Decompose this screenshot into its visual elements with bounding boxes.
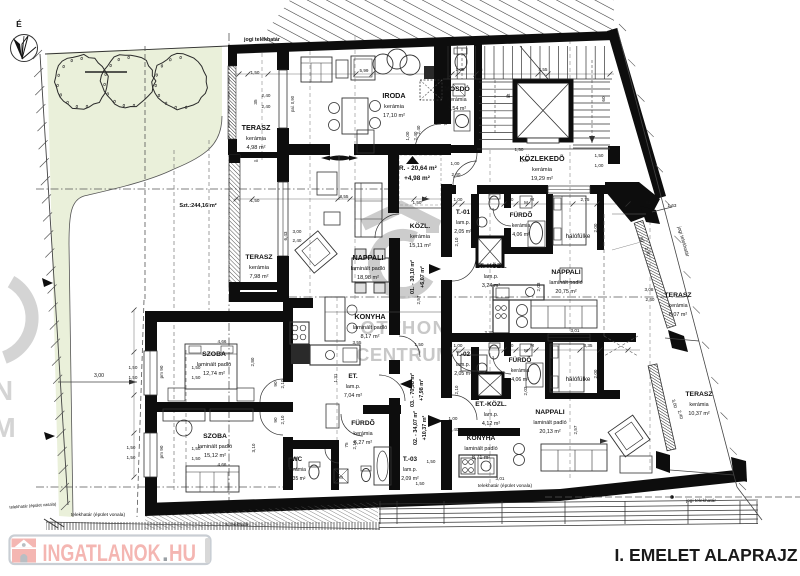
svg-text:TERASZ: TERASZ — [685, 391, 712, 398]
svg-text:ET.: ET. — [348, 373, 357, 380]
svg-text:pm 90: pm 90 — [159, 365, 164, 378]
svg-text:HU: HU — [169, 540, 196, 567]
svg-text:90: 90 — [273, 381, 278, 387]
svg-text:T.-01: T.-01 — [456, 209, 471, 216]
svg-text:1,50: 1,50 — [129, 365, 138, 370]
svg-text:1,50: 1,50 — [595, 153, 604, 158]
svg-text:laminált padló: laminált padló — [197, 362, 232, 368]
svg-text:lam.p.: lam.p. — [484, 274, 499, 280]
svg-text:2,40: 2,40 — [293, 238, 302, 243]
svg-text:3,24 m²: 3,24 m² — [482, 283, 500, 289]
svg-text:4,66: 4,66 — [218, 339, 227, 344]
svg-text:ET.-KÖZL.: ET.-KÖZL. — [475, 261, 507, 270]
svg-text:2,80: 2,80 — [250, 357, 255, 366]
svg-text:2,40: 2,40 — [416, 125, 421, 134]
svg-text:60: 60 — [601, 96, 606, 102]
svg-text:4,12 m²: 4,12 m² — [482, 421, 500, 427]
svg-text:90: 90 — [273, 417, 278, 423]
svg-text:2,00: 2,00 — [593, 223, 598, 232]
svg-text:2,05 m²: 2,05 m² — [454, 229, 472, 235]
svg-text:laminált padló: laminált padló — [353, 325, 388, 331]
svg-text:telekhatár (épület vonala): telekhatár (épület vonala) — [71, 512, 126, 518]
svg-text:NAPPALI: NAPPALI — [551, 269, 580, 276]
svg-text:kerámia: kerámia — [511, 368, 530, 374]
svg-text:É: É — [16, 19, 22, 29]
svg-text:15,11 m²: 15,11 m² — [409, 243, 431, 249]
svg-text:kerámia: kerámia — [249, 265, 270, 271]
svg-text:NAPPALI: NAPPALI — [352, 253, 383, 262]
svg-text:1,00: 1,00 — [595, 163, 604, 168]
svg-text:2,10: 2,10 — [352, 440, 357, 449]
svg-text:KÖZL.: KÖZL. — [410, 221, 430, 230]
svg-text:2,40: 2,40 — [450, 427, 459, 432]
svg-text:6. telekhatár: 6. telekhatár — [225, 522, 249, 527]
svg-text:1,63: 1,63 — [673, 341, 682, 346]
svg-text:1,50: 1,50 — [192, 456, 201, 461]
svg-text:ET.-KÖZL.: ET.-KÖZL. — [475, 399, 507, 408]
svg-text:3,00: 3,00 — [94, 373, 104, 379]
svg-text:lam.p.: lam.p. — [456, 220, 470, 226]
svg-text:2,40: 2,40 — [646, 297, 655, 302]
svg-text:IRODA: IRODA — [382, 91, 405, 100]
svg-text:TERASZ: TERASZ — [242, 123, 271, 132]
svg-text:kerámia: kerámia — [246, 136, 267, 142]
svg-text:vő: vő — [254, 159, 258, 163]
svg-text:2,30: 2,30 — [505, 197, 514, 202]
svg-text:2,00: 2,00 — [593, 369, 598, 378]
svg-text:4,98 m²: 4,98 m² — [247, 145, 266, 151]
svg-text:2,10: 2,10 — [280, 415, 285, 424]
svg-text:6,07 m²: 6,07 m² — [669, 312, 687, 318]
svg-text:2,40: 2,40 — [452, 172, 461, 177]
svg-text:hálófülke: hálófülke — [566, 376, 591, 383]
svg-text:2,05 m²: 2,05 m² — [454, 371, 472, 377]
svg-text:18,98 m²: 18,98 m² — [357, 275, 379, 281]
svg-text:M: M — [530, 197, 534, 202]
svg-text:75: 75 — [443, 120, 448, 126]
svg-text:2,10: 2,10 — [454, 385, 459, 394]
svg-text:M: M — [339, 475, 343, 480]
svg-text:1,00: 1,00 — [454, 343, 463, 348]
svg-text:3,01: 3,01 — [571, 328, 580, 333]
svg-text:3,35: 3,35 — [584, 343, 593, 348]
svg-text:1,50: 1,50 — [192, 446, 201, 451]
svg-text:M: M — [530, 343, 534, 348]
svg-text:lam.p.: lam.p. — [346, 384, 361, 390]
svg-text:20,13 m²: 20,13 m² — [539, 429, 560, 435]
svg-text:6,43: 6,43 — [283, 231, 288, 240]
svg-text:TERASZ: TERASZ — [664, 292, 691, 299]
svg-text:2,57: 2,57 — [416, 295, 421, 304]
svg-text:2,40: 2,40 — [262, 93, 271, 98]
svg-text:2,30: 2,30 — [505, 343, 514, 348]
svg-text:3,01: 3,01 — [496, 476, 505, 481]
svg-text:4,66: 4,66 — [218, 462, 227, 467]
svg-text:75: 75 — [344, 442, 349, 448]
svg-text:FÜRDÕ: FÜRDÕ — [509, 355, 532, 364]
svg-text:8,71 m²: 8,71 m² — [472, 455, 490, 461]
svg-text:WC: WC — [292, 456, 303, 463]
svg-text:1,50: 1,50 — [127, 445, 136, 450]
svg-text:FÜRDÕ: FÜRDÕ — [351, 418, 374, 427]
svg-text:kerámia: kerámia — [512, 223, 531, 229]
svg-text:25: 25 — [477, 67, 483, 72]
svg-text:01. - 30,10 m²: 01. - 30,10 m² — [410, 260, 416, 294]
svg-text:3,10: 3,10 — [251, 443, 256, 452]
svg-text:7,04 m²: 7,04 m² — [344, 393, 362, 399]
svg-text:pal. 0,90: pal. 0,90 — [290, 95, 295, 112]
svg-text:2,40: 2,40 — [262, 104, 271, 109]
svg-text:1,50: 1,50 — [127, 455, 136, 460]
svg-text:3,54 m²: 3,54 m² — [448, 106, 466, 112]
svg-text:10,37 m²: 10,37 m² — [688, 411, 709, 417]
svg-text:02. - 34,07 m²: 02. - 34,07 m² — [413, 411, 419, 445]
svg-text:1,50: 1,50 — [416, 481, 425, 486]
svg-text:1,50: 1,50 — [515, 147, 524, 152]
svg-text:TERASZ: TERASZ — [245, 254, 272, 261]
svg-text:7,98 m²: 7,98 m² — [250, 274, 269, 280]
svg-text:12,74 m²: 12,74 m² — [203, 371, 225, 377]
svg-text:2,57: 2,57 — [573, 425, 578, 434]
svg-text:telekhatár (épület vonala): telekhatár (épület vonala) — [478, 483, 533, 489]
svg-text:1,00: 1,00 — [405, 131, 410, 140]
svg-text:KONYHA: KONYHA — [467, 435, 496, 442]
svg-text:N: N — [0, 375, 13, 406]
svg-text:+4,98 m²: +4,98 m² — [404, 175, 430, 182]
svg-text:kerámia: kerámia — [353, 431, 372, 437]
svg-text:4,06 m²: 4,06 m² — [512, 232, 530, 238]
svg-text:laminált padló: laminált padló — [549, 280, 582, 286]
svg-text:15,12 m²: 15,12 m² — [204, 453, 226, 459]
svg-text:kerámia: kerámia — [668, 303, 687, 309]
svg-text:1,00: 1,00 — [451, 161, 460, 166]
svg-text:MOSDÓ: MOSDÓ — [444, 84, 470, 93]
svg-text:20,75 m²: 20,75 m² — [555, 289, 576, 295]
svg-text:1,31: 1,31 — [333, 373, 338, 382]
svg-text:2,10: 2,10 — [454, 237, 459, 246]
svg-text:2,03: 2,03 — [536, 282, 541, 291]
svg-text:81: 81 — [645, 200, 651, 205]
svg-text:Szt.:244,16 m²: Szt.:244,16 m² — [179, 202, 216, 209]
svg-text:1,63: 1,63 — [668, 203, 677, 208]
svg-text:lam.p.: lam.p. — [456, 362, 470, 368]
svg-text:laminált padló: laminált padló — [464, 446, 497, 452]
svg-text:kerámia: kerámia — [384, 104, 405, 110]
svg-text:4,06 m²: 4,06 m² — [511, 377, 529, 383]
svg-text:lift: lift — [506, 93, 511, 98]
svg-text:1,50: 1,50 — [129, 375, 138, 380]
svg-text:2,10: 2,10 — [280, 379, 285, 388]
svg-text:laminált padló: laminált padló — [533, 420, 566, 426]
svg-text:INGATLANOK: INGATLANOK — [43, 540, 161, 567]
svg-text:1,50: 1,50 — [415, 342, 424, 347]
svg-text:I. EMELET ALAPRAJZ: I. EMELET ALAPRAJZ — [614, 545, 797, 565]
svg-text:5,99: 5,99 — [360, 68, 369, 73]
svg-text:35: 35 — [253, 99, 258, 105]
svg-text:+7,98 m²: +7,98 m² — [419, 379, 425, 401]
svg-text:1,50: 1,50 — [427, 459, 436, 464]
svg-text:jogi telekhatár: jogi telekhatár — [685, 498, 716, 504]
svg-text:1,50: 1,50 — [251, 70, 260, 75]
svg-text:75: 75 — [446, 239, 451, 245]
svg-text:3,08: 3,08 — [645, 287, 654, 292]
svg-text:KONYHA: KONYHA — [354, 312, 385, 321]
svg-text:+6,07 m²: +6,07 m² — [420, 266, 426, 288]
svg-text:FÜRDÕ: FÜRDÕ — [510, 210, 533, 219]
svg-text:kerámia: kerámia — [689, 402, 708, 408]
svg-text:2,03: 2,03 — [523, 386, 528, 395]
svg-text:19,29 m²: 19,29 m² — [531, 176, 553, 182]
svg-text:3,55: 3,55 — [340, 194, 349, 199]
svg-text:17,10 m²: 17,10 m² — [383, 113, 405, 119]
svg-text:1,00: 1,00 — [454, 197, 463, 202]
svg-text:kerámia: kerámia — [447, 97, 466, 103]
svg-text:2,75: 2,75 — [581, 197, 590, 202]
svg-text:1,50: 1,50 — [192, 375, 201, 380]
svg-text:1,00: 1,00 — [449, 416, 458, 421]
svg-text:M: M — [0, 412, 16, 443]
svg-text:3,55: 3,55 — [353, 340, 362, 345]
svg-text:T.-03: T.-03 — [403, 456, 418, 463]
svg-text:1,00: 1,00 — [520, 158, 529, 163]
svg-text:75: 75 — [446, 387, 451, 393]
svg-text:3,00: 3,00 — [293, 229, 302, 234]
svg-text:1,35 m²: 1,35 m² — [289, 476, 306, 482]
svg-text:kerámia: kerámia — [288, 467, 306, 473]
svg-text:SZOBA: SZOBA — [203, 433, 227, 440]
svg-text:CENTRUM: CENTRUM — [356, 344, 452, 365]
svg-text:2,30: 2,30 — [485, 330, 494, 335]
svg-text:hálófülke: hálófülke — [566, 233, 591, 240]
svg-text:lam.p.: lam.p. — [484, 412, 499, 418]
svg-text:03. - 70,98 m²: 03. - 70,98 m² — [410, 373, 416, 407]
svg-text:SZOBA: SZOBA — [202, 351, 226, 358]
svg-text:pm 90: pm 90 — [159, 445, 164, 458]
svg-text:.: . — [162, 540, 169, 567]
svg-text:IR. - 20,64 m²: IR. - 20,64 m² — [397, 165, 436, 172]
svg-text:NAPPALI: NAPPALI — [535, 409, 564, 416]
svg-text:8,17 m²: 8,17 m² — [361, 334, 380, 340]
svg-text:4,55: 4,55 — [539, 67, 548, 72]
svg-text:lam.p.: lam.p. — [403, 467, 417, 473]
svg-text:1,50: 1,50 — [413, 200, 422, 205]
svg-text:laminált padló: laminált padló — [351, 266, 386, 272]
svg-text:kerámia: kerámia — [532, 167, 553, 173]
svg-text:+10,37 m²: +10,37 m² — [422, 415, 428, 440]
svg-text:kerámia: kerámia — [410, 234, 431, 240]
svg-text:T.-02: T.-02 — [456, 351, 471, 358]
svg-text:1,50: 1,50 — [192, 365, 201, 370]
svg-text:laminált padló: laminált padló — [198, 444, 233, 450]
